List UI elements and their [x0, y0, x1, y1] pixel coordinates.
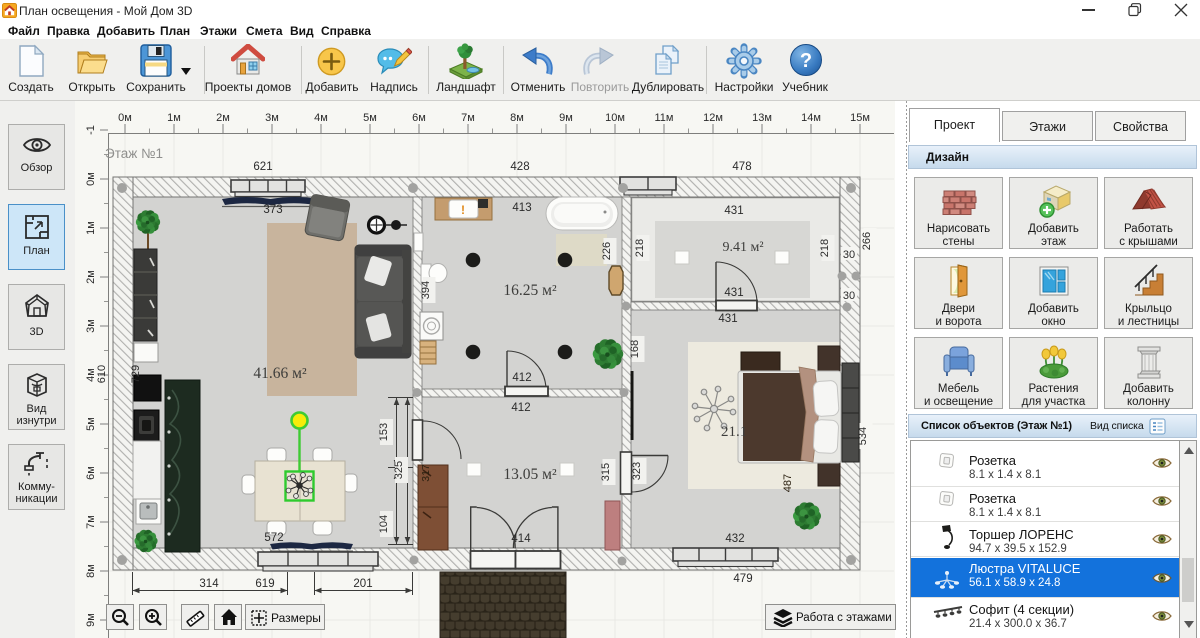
svg-text:610: 610 [96, 365, 108, 383]
svg-text:414: 414 [511, 533, 531, 545]
svg-text:168: 168 [629, 340, 641, 358]
svg-text:2м: 2м [85, 270, 97, 284]
svg-text:-1: -1 [85, 125, 97, 135]
svg-text:8м: 8м [85, 564, 97, 578]
svg-text:0м: 0м [85, 172, 97, 186]
svg-text:9.41 м²: 9.41 м² [722, 240, 763, 255]
svg-text:5м: 5м [363, 112, 377, 124]
svg-text:14м: 14м [801, 112, 821, 124]
svg-text:3м: 3м [85, 319, 97, 333]
svg-text:?: ? [800, 50, 812, 72]
svg-text:7м: 7м [85, 515, 97, 529]
svg-text:218: 218 [819, 239, 831, 257]
svg-text:13.05 м²: 13.05 м² [503, 466, 557, 483]
svg-text:4м: 4м [314, 112, 328, 124]
svg-text:315: 315 [600, 463, 612, 481]
svg-text:8м: 8м [510, 112, 524, 124]
svg-text:413: 413 [512, 202, 531, 214]
svg-text:2м: 2м [216, 112, 230, 124]
svg-text:Этаж №1: Этаж №1 [105, 146, 163, 161]
svg-text:323: 323 [631, 462, 643, 480]
svg-text:478: 478 [732, 161, 751, 173]
svg-text:572: 572 [264, 532, 283, 544]
svg-text:314: 314 [199, 578, 219, 590]
svg-text:30: 30 [843, 249, 855, 261]
svg-text:16.25 м²: 16.25 м² [503, 282, 557, 299]
svg-text:0м: 0м [118, 112, 132, 124]
svg-text:104: 104 [378, 515, 390, 533]
svg-text:325: 325 [393, 461, 405, 479]
svg-text:412: 412 [511, 402, 530, 414]
svg-text:153: 153 [378, 423, 390, 441]
svg-text:431: 431 [718, 313, 737, 325]
svg-text:11м: 11м [655, 112, 674, 124]
svg-text:373: 373 [263, 204, 282, 216]
svg-text:21.1: 21.1 [721, 424, 747, 440]
svg-text:226: 226 [601, 242, 613, 260]
svg-text:13м: 13м [752, 112, 772, 124]
svg-text:10м: 10м [605, 112, 625, 124]
svg-text:218: 218 [634, 239, 646, 257]
svg-text:3м: 3м [265, 112, 279, 124]
svg-text:394: 394 [420, 281, 432, 299]
svg-text:201: 201 [353, 578, 372, 590]
svg-text:41.66 м²: 41.66 м² [253, 365, 307, 382]
svg-text:621: 621 [253, 161, 272, 173]
svg-text:9м: 9м [85, 613, 97, 627]
svg-text:!: ! [461, 203, 465, 217]
svg-text:266: 266 [861, 232, 873, 250]
svg-text:5м: 5м [85, 417, 97, 431]
svg-text:412: 412 [512, 372, 531, 384]
svg-text:9м: 9м [559, 112, 573, 124]
svg-text:428: 428 [510, 161, 529, 173]
svg-text:619: 619 [255, 578, 274, 590]
svg-text:1м: 1м [85, 221, 97, 235]
svg-text:432: 432 [725, 533, 744, 545]
svg-text:6м: 6м [85, 466, 97, 480]
svg-text:479: 479 [733, 573, 752, 585]
svg-text:30: 30 [843, 290, 855, 302]
svg-text:7м: 7м [461, 112, 475, 124]
svg-text:431: 431 [724, 205, 743, 217]
svg-text:317: 317 [420, 464, 432, 482]
svg-text:15м: 15м [850, 112, 870, 124]
svg-text:1м: 1м [167, 112, 181, 124]
svg-text:487: 487 [782, 474, 794, 492]
svg-text:431: 431 [724, 287, 743, 299]
svg-text:6м: 6м [412, 112, 426, 124]
svg-text:12м: 12м [703, 112, 723, 124]
svg-text:729: 729 [130, 365, 142, 383]
